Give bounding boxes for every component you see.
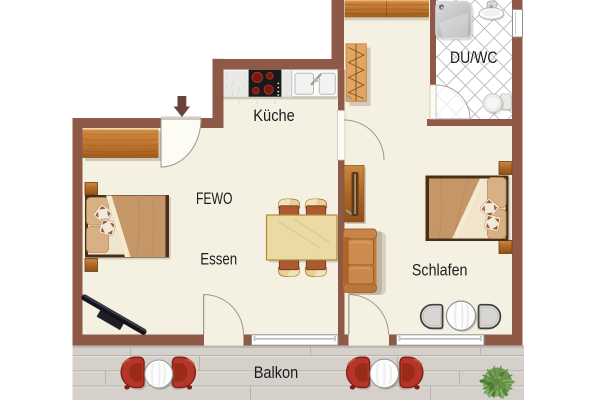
svg-text:Balkon: Balkon xyxy=(254,364,299,382)
svg-text:Essen: Essen xyxy=(200,251,237,269)
svg-text:Küche: Küche xyxy=(253,107,294,125)
svg-text:Schlafen: Schlafen xyxy=(412,262,468,280)
svg-text:DU/WC: DU/WC xyxy=(450,49,498,67)
svg-text:FEWO: FEWO xyxy=(196,190,233,208)
